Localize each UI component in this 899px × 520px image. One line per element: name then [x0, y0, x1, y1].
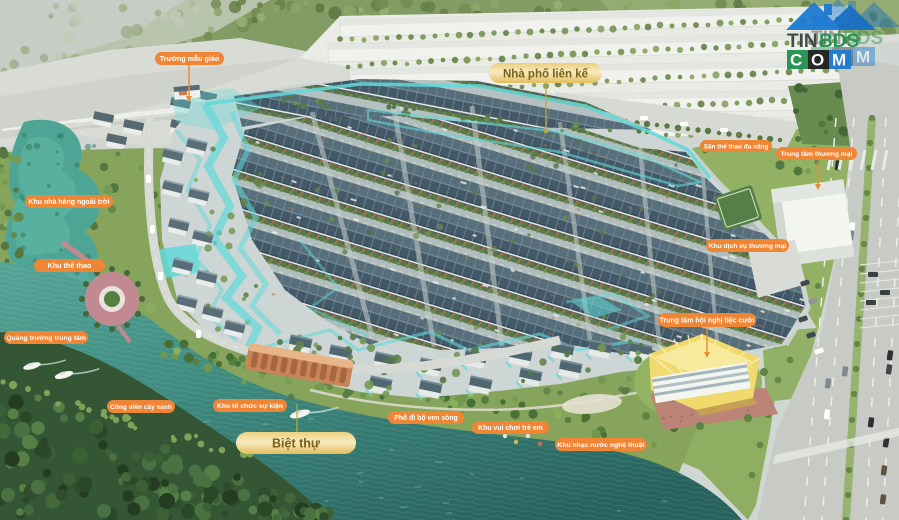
- svg-text:Sân thể thao đa năng: Sân thể thao đa năng: [704, 142, 769, 150]
- svg-text:Trung tâm thương mại: Trung tâm thương mại: [781, 151, 853, 158]
- svg-text:Quảng trường trung tâm: Quảng trường trung tâm: [6, 335, 86, 342]
- svg-text:Khu dịch vụ thương mại: Khu dịch vụ thương mại: [709, 243, 787, 250]
- svg-text:O: O: [811, 51, 824, 70]
- svg-text:BDS: BDS: [819, 31, 859, 52]
- svg-text:Khu nhạc nước nghệ thuật: Khu nhạc nước nghệ thuật: [557, 442, 645, 449]
- svg-text:TIN: TIN: [787, 31, 818, 52]
- svg-text:Khu nhà hàng ngoài trời: Khu nhà hàng ngoài trời: [28, 199, 109, 206]
- svg-text:Biệt thự: Biệt thự: [272, 437, 321, 451]
- svg-text:Trung tâm hội nghị tiệc cưới: Trung tâm hội nghị tiệc cưới: [660, 318, 755, 325]
- svg-text:M: M: [832, 51, 846, 70]
- svg-text:Phố đi bộ ven sông: Phố đi bộ ven sông: [394, 414, 458, 422]
- svg-text:Khu vui chơi trẻ em: Khu vui chơi trẻ em: [478, 425, 543, 432]
- svg-text:Nhà phố liên kế: Nhà phố liên kế: [503, 69, 589, 81]
- svg-text:Công viên cây xanh: Công viên cây xanh: [110, 404, 172, 411]
- svg-text:Khu thể thao: Khu thể thao: [48, 261, 93, 270]
- svg-text:C: C: [790, 51, 802, 70]
- svg-text:Trường mẫu giáo: Trường mẫu giáo: [160, 54, 220, 63]
- svg-text:Khu tổ chức sự kiện: Khu tổ chức sự kiện: [217, 402, 283, 410]
